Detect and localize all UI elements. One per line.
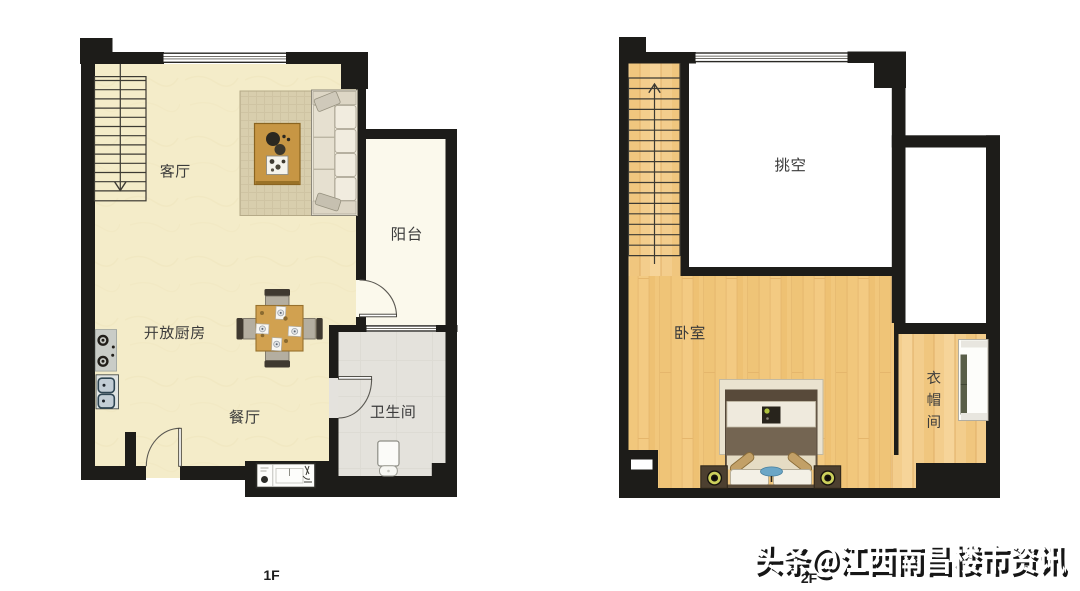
svg-text:1F: 1F	[263, 567, 280, 583]
svg-text:2F: 2F	[801, 570, 818, 586]
